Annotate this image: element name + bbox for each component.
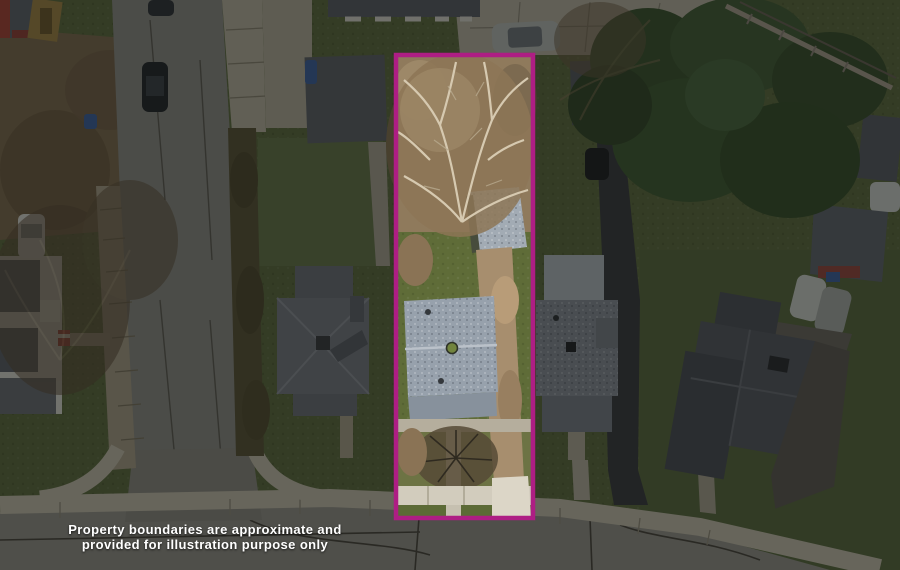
front-yard-tree xyxy=(414,426,498,490)
disclaimer-line-2: provided for illustration purpose only xyxy=(50,537,360,552)
subject-house xyxy=(404,296,498,432)
leaf-drift xyxy=(397,234,433,286)
subject-property xyxy=(386,53,537,518)
aerial-scene xyxy=(0,0,900,570)
house-lower-roof xyxy=(408,392,497,421)
roof-vent-2 xyxy=(438,378,444,384)
driveway-apron xyxy=(492,476,531,517)
disclaimer-line-1: Property boundaries are approximate and xyxy=(50,522,360,537)
bare-tree-canopy xyxy=(386,53,534,237)
disclaimer: Property boundaries are approximate and … xyxy=(50,522,360,552)
roof-vent-1 xyxy=(425,309,431,315)
leaf-drift-front xyxy=(397,428,427,476)
driveway-patch xyxy=(491,276,519,324)
aerial-photo: Property boundaries are approximate and … xyxy=(0,0,900,570)
